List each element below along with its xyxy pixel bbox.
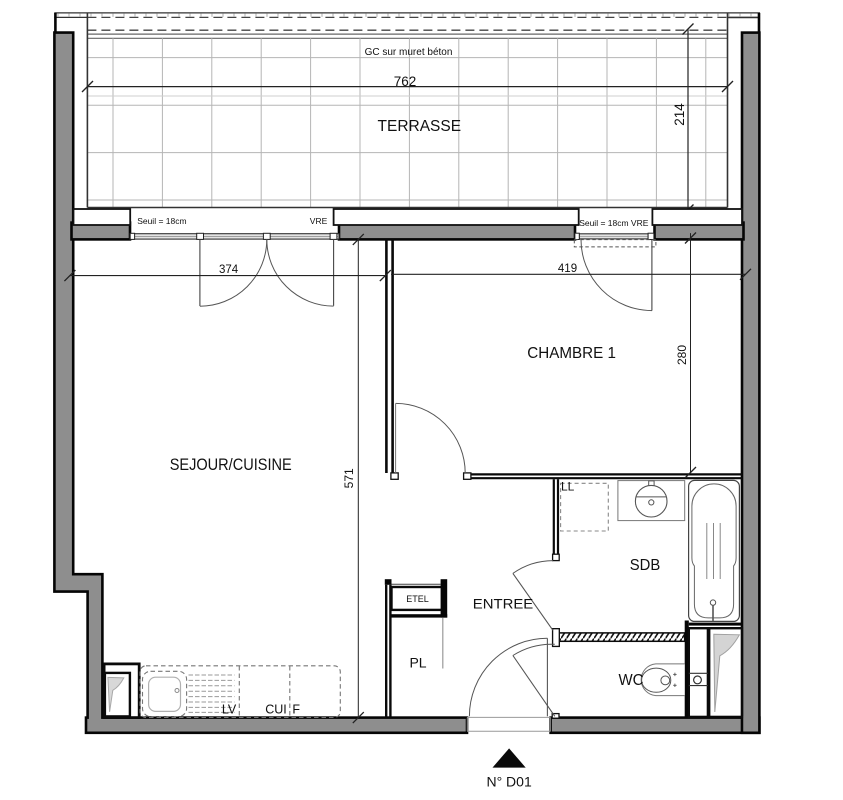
svg-text:GC sur muret béton: GC sur muret béton xyxy=(365,47,453,58)
svg-text:ETEL: ETEL xyxy=(406,594,429,604)
svg-text:VRE: VRE xyxy=(310,216,328,226)
svg-text:WC: WC xyxy=(619,672,644,689)
svg-text:419: 419 xyxy=(558,263,577,275)
svg-text:280: 280 xyxy=(675,345,689,365)
svg-text:SDB: SDB xyxy=(630,557,661,574)
svg-text:762: 762 xyxy=(394,74,417,89)
svg-text:Seuil = 18cm VRE: Seuil = 18cm VRE xyxy=(579,218,649,228)
svg-text:ENTREE: ENTREE xyxy=(473,596,534,612)
svg-text:F: F xyxy=(292,703,300,717)
svg-text:571: 571 xyxy=(342,468,356,488)
svg-text:TERRASSE: TERRASSE xyxy=(378,118,462,135)
svg-text:CHAMBRE 1: CHAMBRE 1 xyxy=(527,345,616,362)
svg-text:N° D01: N° D01 xyxy=(486,774,531,790)
svg-text:CUI: CUI xyxy=(265,703,287,717)
svg-text:374: 374 xyxy=(219,264,239,276)
svg-text:SEJOUR/CUISINE: SEJOUR/CUISINE xyxy=(170,455,292,474)
svg-text:LL: LL xyxy=(561,480,575,494)
svg-text:LV: LV xyxy=(222,703,237,717)
svg-text:214: 214 xyxy=(672,103,687,126)
svg-text:PL: PL xyxy=(409,655,426,671)
svg-text:Seuil = 18cm: Seuil = 18cm xyxy=(137,216,186,226)
